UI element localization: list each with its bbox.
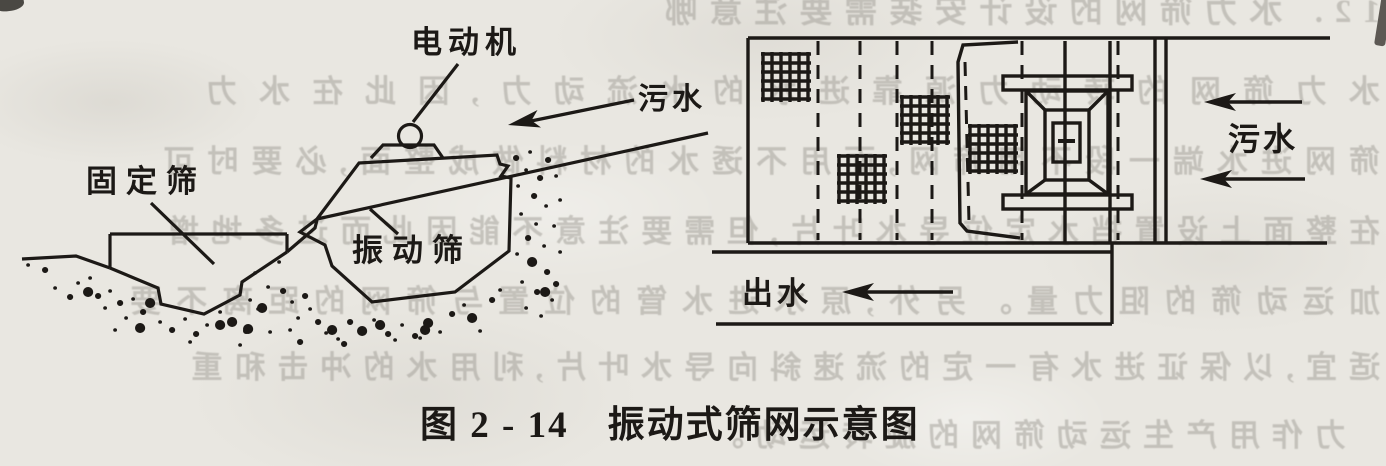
fixed-screen-label: 固定筛 (86, 164, 206, 199)
motor-leader-line (413, 64, 458, 122)
ground-ridge (287, 220, 317, 252)
hub-brace (1026, 91, 1045, 110)
ground-line-left (22, 256, 110, 268)
vibrating-screen-body (300, 155, 511, 302)
sewage-label-left: 污水 (638, 83, 706, 116)
mesh-debris-patch (837, 154, 887, 204)
mesh-debris-patch (968, 124, 1018, 174)
motor-label: 电动机 (411, 25, 522, 60)
hub-brace (1089, 91, 1108, 110)
outflow-label: 出水 (742, 276, 812, 311)
sewage-label-right: 污水 (1228, 121, 1298, 157)
hub-brace (1089, 180, 1108, 194)
vibrating-screen-side-view: 电动机 污水 固定筛 振动筛 (22, 25, 708, 345)
screen-deck-line (317, 133, 708, 219)
scanned-textbook-figure-page: 12. 水力筛网的设计安装需要注意哪 水力筛网的转动力源靠进水的水流动力,因此在… (0, 0, 1386, 466)
mesh-debris-patch (761, 52, 811, 102)
mesh-debris-patch (900, 95, 950, 145)
hub-brace (1026, 180, 1045, 194)
vibrating-screen-label: 振动筛 (352, 233, 472, 268)
vibrating-screen-plan-view: 污水 出水 (712, 38, 1330, 324)
vibrating-screen-leader-line (370, 209, 398, 234)
figure-caption: 图 2 - 14 振动式筛网示意图 (420, 394, 920, 448)
sewage-arrow-line (531, 100, 634, 121)
